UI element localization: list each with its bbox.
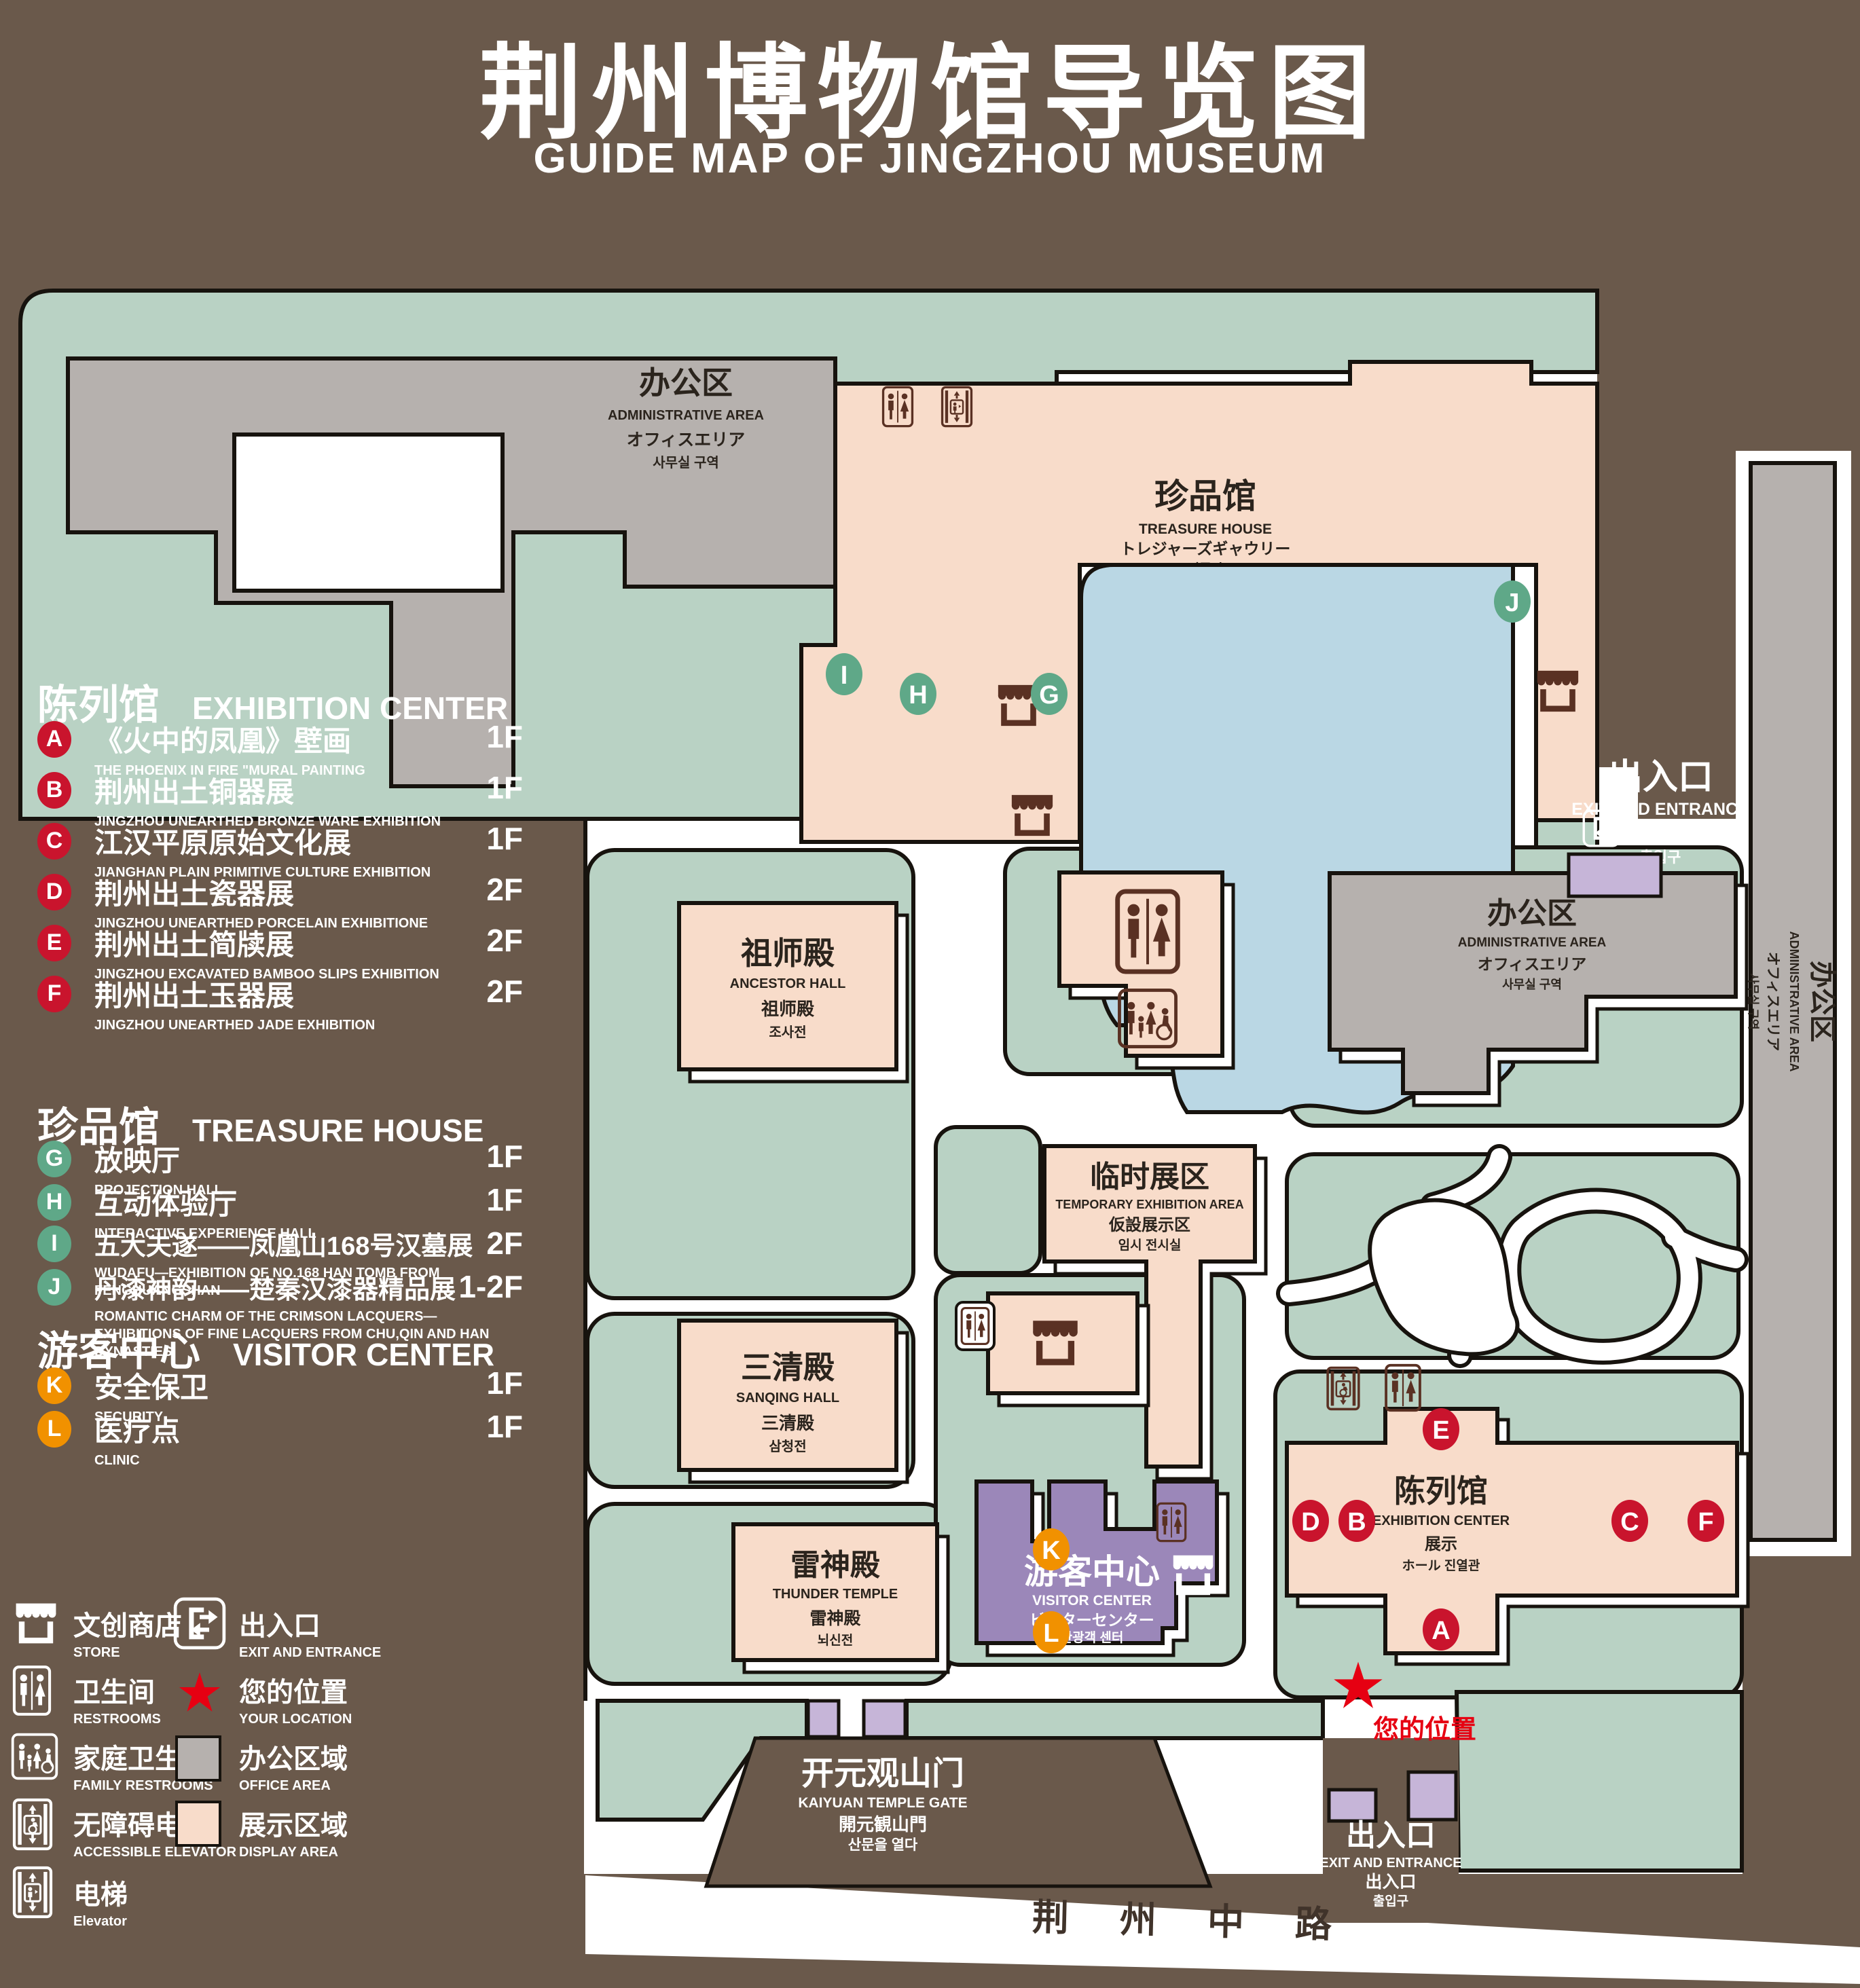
symbol-label-en: YOUR LOCATION <box>239 1712 352 1727</box>
elevator-icon <box>12 1866 53 1919</box>
eastadmin-label-zh: 办公区 <box>1807 961 1837 1042</box>
green-gate-east <box>907 1701 1323 1738</box>
item-floor: 2F <box>424 871 523 908</box>
marker-C: C <box>1611 1500 1648 1542</box>
ancestor-label-jp: 祖师殿 <box>761 999 814 1019</box>
ne-exit-kiosk <box>1569 854 1661 896</box>
legend-your-location: 您的位置 YOUR LOCATION <box>239 1670 352 1727</box>
marker-badge-B: B <box>37 772 71 809</box>
eastadmin-label-kr: 사무실 구역 <box>1747 974 1759 1030</box>
nw-admin-courtyard <box>234 435 503 591</box>
item-title: 放映厅 <box>94 1138 180 1179</box>
marker-badge-H: H <box>37 1184 71 1221</box>
svg-text:A: A <box>1432 1617 1450 1645</box>
legend-store: 文创商店 STORE <box>73 1604 182 1661</box>
item-floor: 2F <box>424 1225 523 1262</box>
family-restroom-icon <box>11 1733 58 1780</box>
store-icon <box>12 1601 60 1646</box>
item-floor: 1F <box>424 769 523 806</box>
eastadmin-label-en: ADMINISTRATIVE AREA <box>1787 932 1801 1072</box>
svg-text:J: J <box>1505 589 1519 617</box>
sanqing-label-en: SANQING HALL <box>736 1391 839 1405</box>
sanqing-hall-building: 三清殿 SANQING HALL 三清殿 삼청전 <box>679 1321 907 1482</box>
symbol-label-zh: 出入口 <box>239 1604 381 1643</box>
midadmin-label-jp: オフィスエリア <box>1478 955 1587 973</box>
symbol-label-en: Elevator <box>73 1914 128 1930</box>
gate-pillar <box>808 1701 839 1737</box>
exhibition-label-kr: ホール 진열관 <box>1402 1558 1480 1573</box>
svg-text:H: H <box>909 681 927 710</box>
gate-label-kr: 산문을 열다 <box>848 1837 918 1853</box>
svg-text:C: C <box>1620 1508 1639 1536</box>
nw-admin-label-en: ADMINISTRATIVE AREA <box>608 408 764 423</box>
item-title: 荆州出土瓷器展 <box>94 871 294 913</box>
legend-restrooms: 卫生间 RESTROOMS <box>73 1670 161 1727</box>
item-floor: 1F <box>424 1408 523 1445</box>
exhibition-label-en: EXHIBITION CENTER <box>1372 1513 1510 1528</box>
marker-badge-C: C <box>37 823 71 860</box>
marker-A: A <box>1423 1608 1459 1651</box>
legend-item-L: L 医疗点 1F CLINIC <box>37 1408 533 1469</box>
item-caption: JINGZHOU UNEARTHED JADE EXHIBITION <box>94 1016 515 1034</box>
marker-H: H <box>900 673 936 715</box>
legend-display-area: 展示区域 DISPLAY AREA <box>239 1803 348 1860</box>
marker-B: B <box>1338 1500 1375 1542</box>
symbol-label-zh: 展示区域 <box>239 1803 348 1843</box>
symbol-label-en: RESTROOMS <box>73 1712 161 1727</box>
symbol-label-en: EXIT AND ENTRANCE <box>239 1645 381 1661</box>
nw-admin-label-zh: 办公区 <box>639 365 733 401</box>
south-exit-kiosk <box>1408 1772 1456 1820</box>
legend-office-area: 办公区域 OFFICE AREA <box>239 1737 348 1794</box>
gate-label-en: KAIYUAN TEMPLE GATE <box>798 1795 967 1811</box>
temp-label-en: TEMPORARY EXHIBITION AREA <box>1055 1198 1243 1211</box>
marker-D: D <box>1292 1500 1329 1542</box>
marker-badge-E: E <box>37 925 71 961</box>
item-floor: 1F <box>424 1181 523 1218</box>
green-southeast <box>1457 1692 1742 1871</box>
item-title: 江汉平原原始文化展 <box>94 820 351 862</box>
sanqing-label-kr: 삼청전 <box>769 1439 806 1454</box>
symbol-label-zh: 办公区域 <box>239 1737 348 1776</box>
symbol-label-en: ACCESSIBLE ELEVATOR <box>73 1845 236 1860</box>
item-floor: 1-2F <box>424 1268 523 1305</box>
temp-label-kr: 임시 전시실 <box>1118 1238 1182 1253</box>
display-area-swatch <box>175 1801 221 1847</box>
svg-text:D: D <box>1301 1508 1319 1536</box>
legend-elevator: 电梯 Elevator <box>73 1873 128 1930</box>
visitor-label-en: VISITOR CENTER <box>1032 1593 1152 1608</box>
item-floor: 1F <box>424 820 523 857</box>
s-exit-label-en: EXIT AND ENTRANCE <box>1319 1856 1461 1871</box>
svg-text:F: F <box>1698 1508 1713 1536</box>
office-area-swatch <box>175 1735 221 1782</box>
item-floor: 2F <box>424 973 523 1010</box>
item-title: 荆州出土玉器展 <box>94 973 294 1014</box>
legend-item-F: F 荆州出土玉器展 2F JINGZHOU UNEARTHED JADE EXH… <box>37 973 533 1034</box>
item-title: 荆州出土简牍展 <box>94 922 294 963</box>
restroom-icon <box>12 1665 52 1716</box>
marker-K: K <box>1033 1528 1070 1570</box>
symbol-label-zh: 电梯 <box>73 1873 128 1912</box>
thunder-temple-building: 雷神殿 THUNDER TEMPLE 雷神殿 뇌신전 <box>733 1524 948 1672</box>
thunder-label-jp: 雷神殿 <box>809 1609 861 1628</box>
midadmin-label-en: ADMINISTRATIVE AREA <box>1458 936 1607 950</box>
temp-label-zh: 临时展区 <box>1090 1160 1209 1194</box>
symbol-label-en: OFFICE AREA <box>239 1778 348 1794</box>
thunder-label-en: THUNDER TEMPLE <box>773 1587 898 1602</box>
svg-text:I: I <box>841 661 848 690</box>
accessible-elevator-icon <box>12 1798 53 1851</box>
ancestor-label-en: ANCESTOR HALL <box>730 976 846 991</box>
exit-icon <box>173 1597 226 1650</box>
symbol-label-zh: 文创商店 <box>73 1604 182 1643</box>
gate-label-jp: 開元観山門 <box>839 1814 927 1835</box>
marker-badge-A: A <box>37 721 71 758</box>
item-caption: CLINIC <box>94 1452 515 1469</box>
thunder-label-zh: 雷神殿 <box>790 1549 880 1582</box>
visitor-label-kr: 관광객 센터 <box>1061 1630 1124 1645</box>
marker-F: F <box>1688 1500 1724 1542</box>
exhibition-label-jp: 展示 <box>1425 1535 1457 1553</box>
marker-L: L <box>1033 1611 1070 1653</box>
ne-exit-label-zh2: 出入口 <box>1630 823 1691 845</box>
ancestor-hall-building: 祖师殿 ANCESTOR HALL 祖师殿 조사전 <box>679 903 907 1082</box>
ancestor-label-zh: 祖师殿 <box>741 936 835 971</box>
marker-badge-K: K <box>37 1367 71 1404</box>
store-block-shape <box>988 1293 1137 1393</box>
svg-text:L: L <box>1043 1619 1059 1648</box>
ancestor-label-kr: 조사전 <box>769 1025 806 1040</box>
temp-label-jp: 仮設展示区 <box>1108 1215 1190 1234</box>
thunder-label-kr: 뇌신전 <box>818 1633 853 1648</box>
item-floor: 1F <box>424 1365 523 1401</box>
ne-exit-label-en: EXIT AND ENTRANCE <box>1571 800 1749 819</box>
marker-badge-I: I <box>37 1226 71 1262</box>
south-exit: 出入口 EXIT AND ENTRANCE 出入口 출입구 <box>1319 1738 1461 1923</box>
item-floor: 1F <box>424 1138 523 1175</box>
s-exit-label-zh2: 出入口 <box>1365 1873 1416 1892</box>
item-title: 安全保卫 <box>94 1365 208 1406</box>
legend-exit: 出入口 EXIT AND ENTRANCE <box>239 1604 381 1661</box>
nw-admin-label-jp: オフィスエリア <box>627 430 746 449</box>
marker-G: G <box>1031 673 1068 715</box>
item-title: 《火中的凤凰》壁画 <box>94 718 351 760</box>
treasure-label-zh: 珍品馆 <box>1154 477 1256 515</box>
sanqing-label-zh: 三清殿 <box>741 1350 835 1385</box>
item-floor: 2F <box>424 922 523 959</box>
svg-text:K: K <box>1042 1536 1061 1565</box>
marker-badge-G: G <box>37 1141 71 1177</box>
svg-text:G: G <box>1039 681 1059 710</box>
item-title: 丹漆神韵——楚秦汉漆器精品展 <box>94 1268 456 1306</box>
nw-admin-label-kr: 사무실 구역 <box>653 455 719 471</box>
accessible-elevator-icon <box>1328 1368 1359 1410</box>
gate-pillar <box>864 1701 905 1737</box>
item-title: 互动体验厅 <box>94 1181 237 1223</box>
your-location-star-icon <box>178 1672 221 1715</box>
item-title: 五大夫遂——凤凰山168号汉墓展 <box>94 1225 473 1262</box>
green-temp-west-pad <box>936 1127 1040 1273</box>
sanqing-label-jp: 三清殿 <box>761 1413 814 1433</box>
exhibition-label-zh: 陈列馆 <box>1394 1473 1488 1509</box>
item-title: 荆州出土铜器展 <box>94 769 294 811</box>
svg-text:E: E <box>1432 1416 1449 1445</box>
ne-exit-label-zh: 出入口 <box>1607 758 1713 797</box>
road-label: 荆 州 中 路 <box>1032 1897 1352 1945</box>
marker-badge-F: F <box>37 976 71 1012</box>
symbol-label-en: STORE <box>73 1645 182 1661</box>
marker-I: I <box>826 653 862 695</box>
marker-badge-L: L <box>37 1411 71 1448</box>
gate-label-zh: 开元观山门 <box>801 1756 964 1792</box>
your-location-label: 您的位置 <box>1373 1716 1476 1744</box>
marker-badge-D: D <box>37 874 71 910</box>
midadmin-label-kr: 사무실 구역 <box>1502 978 1562 991</box>
east-admin-building: 办公区 ADMINISTRATIVE AREA オフィスエリア 사무실 구역 <box>1747 463 1837 1540</box>
marker-J: J <box>1494 581 1531 623</box>
south-exit-kiosk <box>1329 1790 1376 1821</box>
marker-E: E <box>1423 1408 1459 1450</box>
treasure-label-en: TREASURE HOUSE <box>1139 521 1272 537</box>
symbol-label-zh: 您的位置 <box>239 1670 352 1710</box>
treasure-label-jp: トレジャーズギャウリー <box>1120 540 1291 557</box>
item-floor: 1F <box>424 718 523 755</box>
item-title: 医疗点 <box>94 1408 180 1450</box>
svg-text:B: B <box>1347 1508 1366 1536</box>
eastadmin-label-jp: オフィスエリア <box>1765 952 1781 1052</box>
s-exit-label-kr: 출입구 <box>1373 1894 1408 1909</box>
midadmin-label-zh: 办公区 <box>1487 897 1577 930</box>
symbol-label-zh: 卫生间 <box>73 1670 161 1710</box>
marker-badge-J: J <box>37 1269 71 1306</box>
symbol-label-en: DISPLAY AREA <box>239 1845 348 1860</box>
guide-map-poster: { "title": {"zh": "荆州博物馆导览图", "en": "GUI… <box>0 0 1860 1988</box>
s-exit-label-zh: 出入口 <box>1346 1819 1436 1852</box>
